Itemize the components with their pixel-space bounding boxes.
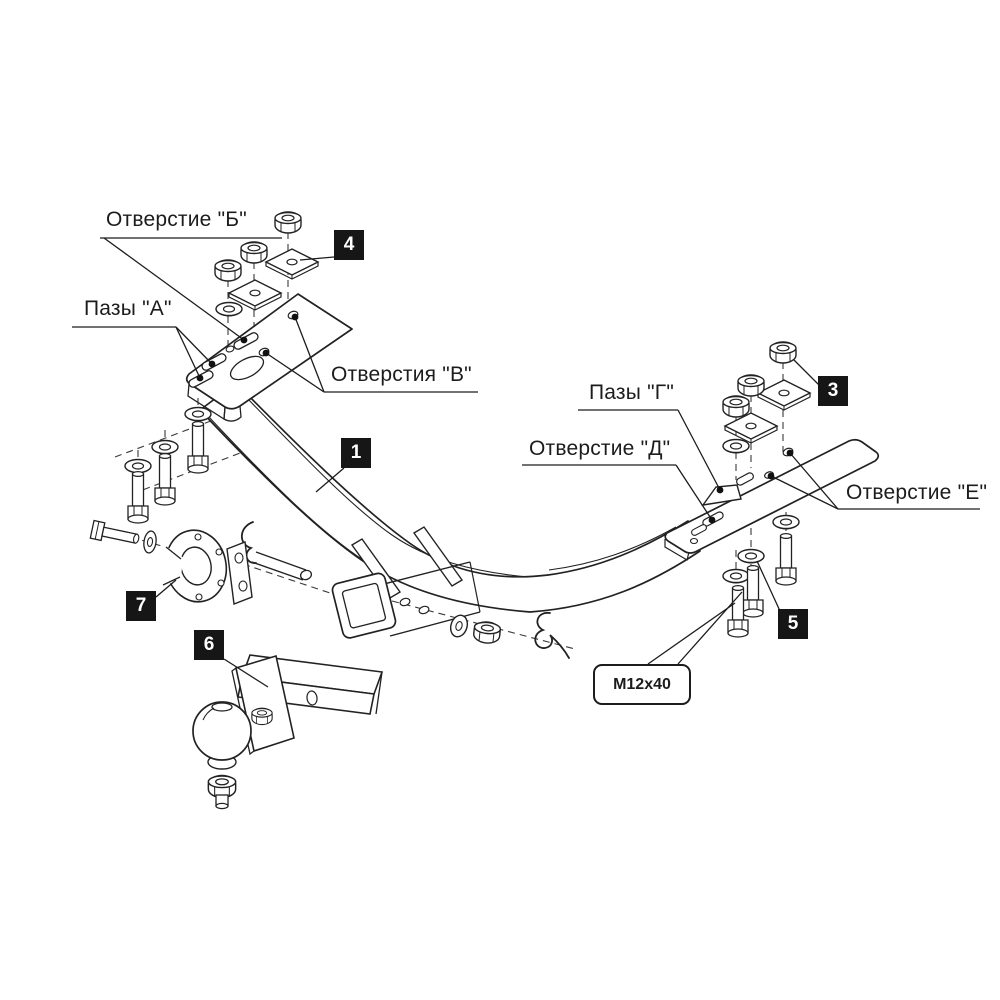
part-badge-socket-bracket: 7 [126, 591, 156, 621]
exploded-diagram: Отверстие "Б" Пазы "А" Отверстия "В" Паз… [0, 0, 1000, 1000]
part-badge-ball-mount: 6 [194, 630, 224, 660]
callout-hole-e: Отверстие "Е" [846, 481, 987, 505]
part-badge-nut-plate-left: 4 [334, 230, 364, 260]
ball-mount [193, 655, 382, 809]
socket-bracket [90, 521, 252, 608]
part-badge-nut-plate-right: 3 [818, 376, 848, 406]
callout-hole-b: Отверстие "Б" [106, 208, 247, 232]
bolt-size-label: M12x40 [593, 664, 691, 705]
hitch-pin [242, 522, 313, 581]
socket-washer [143, 530, 158, 553]
r-clip [535, 613, 569, 658]
callout-hole-d: Отверстие "Д" [529, 437, 670, 461]
callout-slots-g: Пазы "Г" [589, 381, 674, 405]
part-badge-crossbar: 1 [341, 438, 371, 468]
part-badge-bolt-washer: 5 [778, 609, 808, 639]
callout-holes-v: Отверстия "В" [331, 363, 472, 387]
pin-nut [473, 621, 501, 645]
callout-slots-a: Пазы "А" [84, 297, 172, 321]
socket-bolt [90, 521, 140, 548]
